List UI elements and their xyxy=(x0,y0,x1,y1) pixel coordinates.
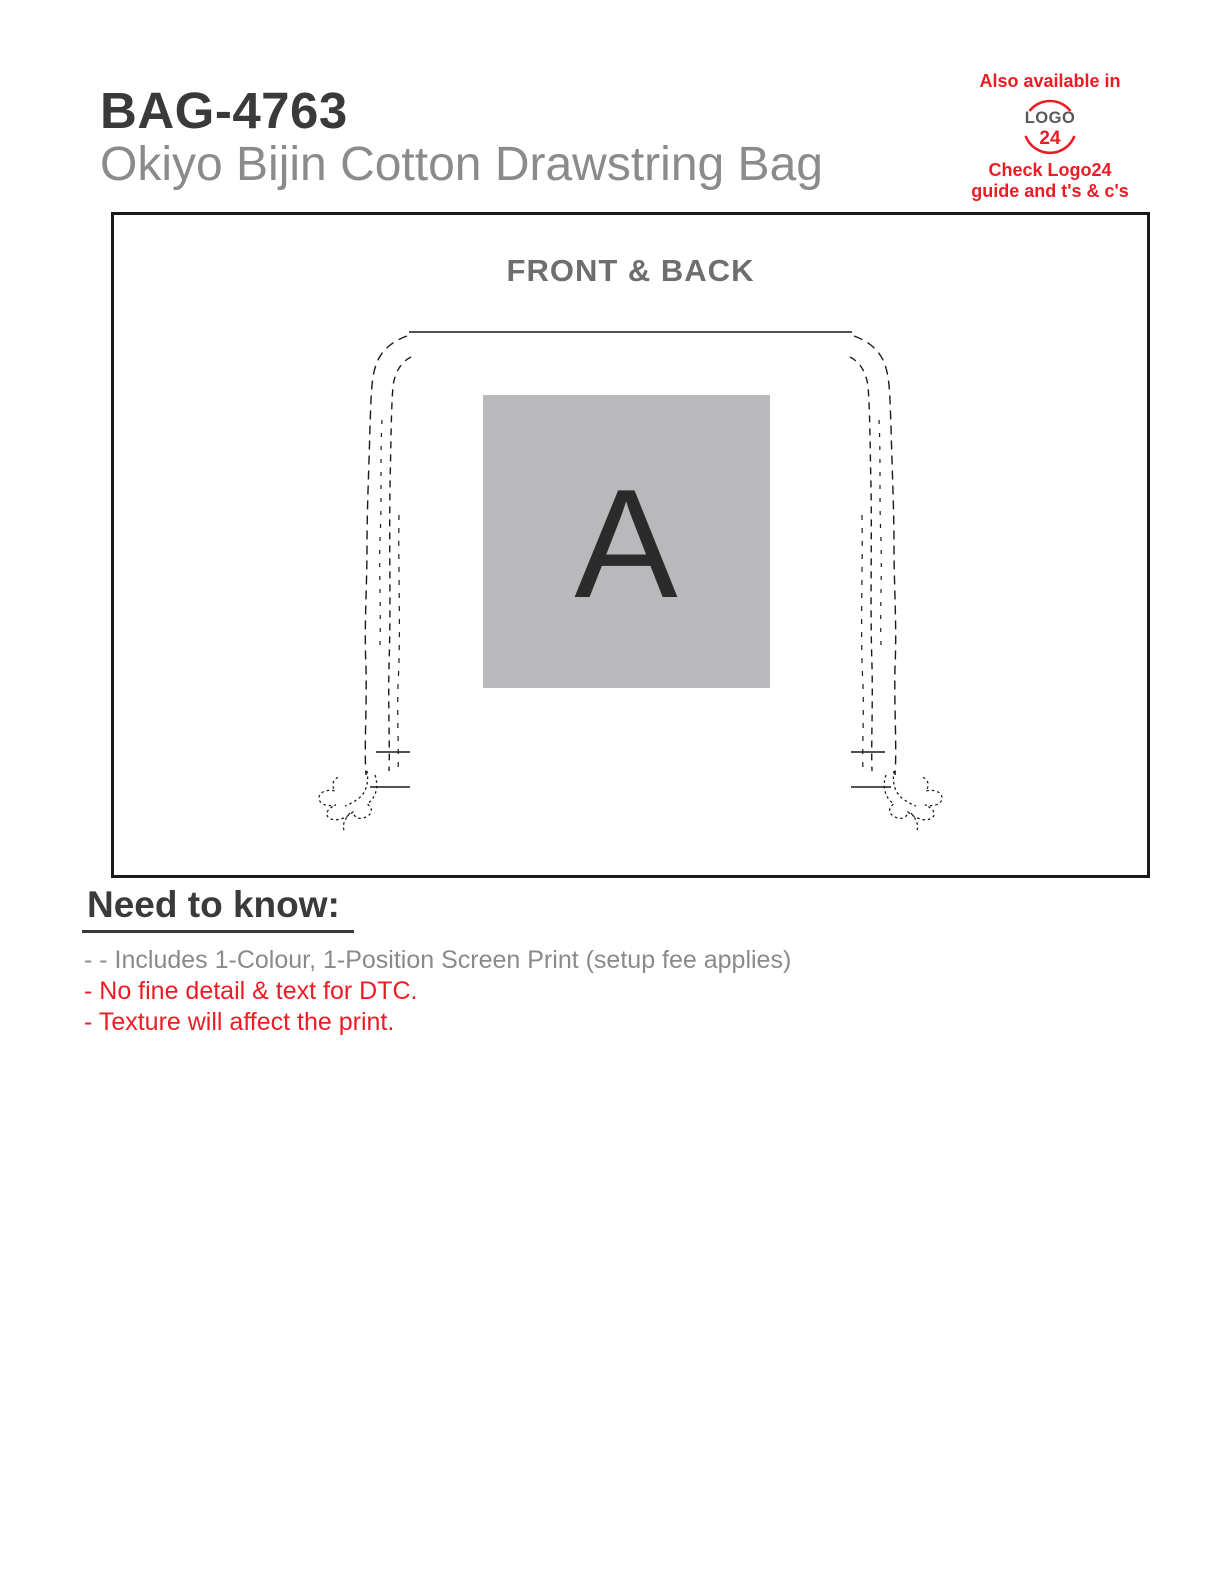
need-to-know-heading: Need to know: xyxy=(82,884,354,933)
logo24-caption: Check Logo24 guide and t's & c's xyxy=(950,160,1150,202)
drawstring-bag-drawing: A xyxy=(114,215,1147,875)
print-area-label: A xyxy=(574,457,678,630)
bag-right-side xyxy=(850,336,942,830)
logo24-caption-line2: guide and t's & c's xyxy=(950,181,1150,202)
artwork-panel: FRONT & BACK A xyxy=(111,212,1150,878)
need-to-know-section: Need to know: - - Includes 1-Colour, 1-P… xyxy=(82,884,1142,1038)
logo24-caption-line1: Check Logo24 xyxy=(950,160,1150,181)
product-name-subtitle: Okiyo Bijin Cotton Drawstring Bag xyxy=(100,138,823,192)
cord-knot xyxy=(319,771,377,830)
logo24-icon: LOGO 24 xyxy=(1018,94,1082,158)
logo24-word: LOGO xyxy=(1025,109,1076,127)
note-item: - No fine detail & text for DTC. xyxy=(84,976,1142,1007)
need-to-know-notes: - - Includes 1-Colour, 1-Position Screen… xyxy=(82,945,1142,1038)
product-code-title: BAG-4763 xyxy=(100,84,823,138)
logo24-badge: Also available in LOGO 24 Check Logo24 g… xyxy=(950,70,1150,202)
bag-left-side xyxy=(319,336,411,830)
header: BAG-4763 Okiyo Bijin Cotton Drawstring B… xyxy=(100,84,823,192)
logo24-number: 24 xyxy=(1039,128,1061,149)
logo24-availability-note: Also available in xyxy=(950,70,1150,92)
note-item: - Texture will affect the print. xyxy=(84,1007,1142,1038)
spec-sheet-page: BAG-4763 Okiyo Bijin Cotton Drawstring B… xyxy=(0,0,1224,1584)
note-item: - - Includes 1-Colour, 1-Position Screen… xyxy=(84,945,1142,976)
